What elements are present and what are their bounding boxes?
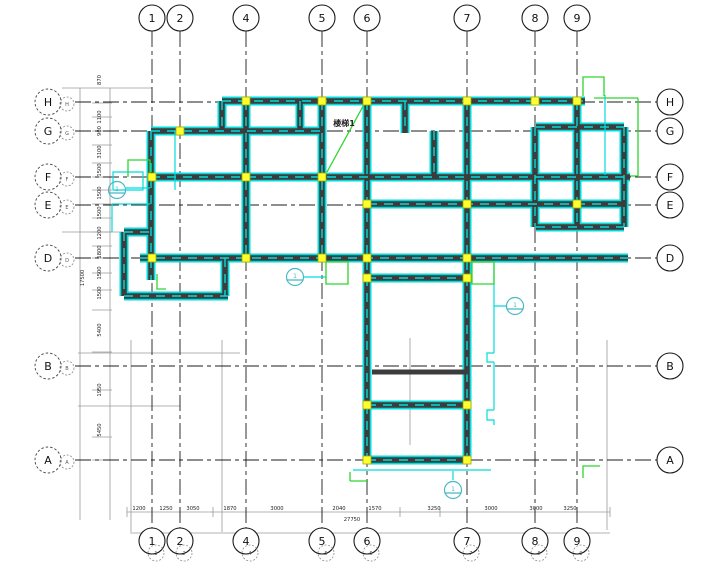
column-marker: [318, 173, 326, 181]
column-marker: [363, 274, 371, 282]
axis-bubble-label: G: [666, 125, 675, 138]
axis-bubble-label: G: [65, 131, 69, 137]
detail-marker-3: 1: [507, 298, 524, 315]
column-marker: [148, 173, 156, 181]
column-marker: [242, 173, 250, 181]
axis-bubble-label: H: [65, 102, 69, 108]
dim-bottom: 3250: [563, 506, 576, 512]
axis-bubble-label: G: [44, 125, 53, 138]
dim-left: 1800: [97, 245, 103, 258]
dim-bottom: 1570: [368, 506, 381, 512]
dim-left-total: 17500: [80, 270, 86, 287]
axis-bubble-label: B: [666, 360, 674, 373]
axis-bubble-label: 6: [364, 12, 371, 25]
dim-left: 1950: [97, 383, 103, 396]
axis-bubble-label: F: [45, 171, 51, 184]
axis-bubble-label: B: [44, 360, 52, 373]
detail-marker-number: 1: [115, 186, 119, 193]
axis-bubble-label: 1: [149, 12, 156, 25]
walls: [124, 101, 630, 460]
column-marker: [363, 401, 371, 409]
dim-left: 1500: [97, 163, 103, 176]
axis-bubble-label: 2: [177, 12, 184, 25]
floor-plan-svg: 1111 111222444555666777888999HHHGGGFFFEE…: [0, 0, 722, 576]
dim-bottom: 3000: [270, 506, 283, 512]
column-marker: [573, 97, 581, 105]
dim-bottom: 3000: [529, 506, 542, 512]
axis-bubble-label: 8: [537, 551, 540, 557]
axis-bubble-label: A: [65, 460, 69, 466]
axis-bubble-label: 6: [369, 551, 372, 557]
axis-bubble-label: E: [45, 199, 52, 212]
axis-bubble-label: 4: [248, 551, 251, 557]
axis-bubble-label: B: [65, 366, 69, 372]
dim-left: 1500: [97, 206, 103, 219]
column-marker: [318, 254, 326, 262]
axis-bubble-label: 7: [464, 12, 471, 25]
dim-left: 5400: [97, 323, 103, 336]
axis-bubble-label: E: [667, 199, 674, 212]
dim-left: 5450: [97, 423, 103, 436]
axis-bubble-label: F: [667, 171, 673, 184]
column-marker: [363, 97, 371, 105]
column-marker: [363, 200, 371, 208]
column-marker: [242, 254, 250, 262]
stair-label: 楼梯1: [333, 118, 355, 128]
column-marker: [463, 97, 471, 105]
dim-bottom: 1200: [132, 506, 145, 512]
dim-left: 900: [97, 126, 103, 136]
axis-bubble-label: 7: [469, 551, 472, 557]
axis-bubble-label: 9: [579, 551, 582, 557]
dim-left: 1500: [97, 286, 103, 299]
axis-bubble-label: D: [666, 252, 674, 265]
detail-marker-number: 1: [293, 273, 297, 280]
axis-bubble-label: 1: [154, 551, 157, 557]
dim-left: 1100: [97, 110, 103, 123]
column-marker: [463, 456, 471, 464]
axis-bubble-label: H: [44, 96, 52, 109]
detail-marker-number: 1: [513, 302, 517, 309]
column-marker: [242, 97, 250, 105]
axis-bubble-label: D: [65, 258, 69, 264]
dim-bottom: 1870: [223, 506, 236, 512]
axis-bubble-label: H: [666, 96, 674, 109]
dim-bottom: 2040: [332, 506, 345, 512]
column-marker: [463, 401, 471, 409]
axis-bubble-label: 9: [574, 12, 581, 25]
column-marker: [463, 200, 471, 208]
axis-bubble-label: A: [666, 454, 674, 467]
axis-bubble-label: E: [65, 205, 68, 211]
column-marker: [318, 97, 326, 105]
column-marker: [531, 97, 539, 105]
detail-marker-number: 1: [451, 486, 455, 493]
dim-left: 1500: [97, 266, 103, 279]
dim-left: 870: [97, 75, 103, 85]
axis-bubble-label: 5: [324, 551, 327, 557]
column-marker: [363, 254, 371, 262]
column-marker: [573, 200, 581, 208]
axis-bubble-label: 4: [243, 12, 250, 25]
dim-bottom: 3250: [427, 506, 440, 512]
detail-markers: 1111: [109, 182, 524, 499]
axis-bubble-label: D: [44, 252, 52, 265]
cad-floor-plan: 1111 111222444555666777888999HHHGGGFFFEE…: [0, 0, 722, 576]
dim-bottom: 1250: [159, 506, 172, 512]
column-marker: [148, 254, 156, 262]
column-marker: [176, 127, 184, 135]
dim-left: 1200: [97, 226, 103, 239]
axis-bubble-label: F: [66, 177, 69, 183]
dim-bottom: 3000: [484, 506, 497, 512]
axis-bubble-label: 8: [532, 12, 539, 25]
dim-bottom-total: 27750: [344, 517, 361, 523]
axis-bubble-label: 2: [182, 551, 185, 557]
axis-bubble-label: 5: [319, 12, 326, 25]
column-marker: [363, 456, 371, 464]
axis-bubble-label: A: [44, 454, 52, 467]
dim-left: 1500: [97, 186, 103, 199]
detail-marker-4: 1: [445, 482, 462, 499]
detail-marker-2: 1: [287, 269, 304, 286]
column-marker: [463, 274, 471, 282]
dim-bottom: 3050: [186, 506, 199, 512]
column-marker: [463, 254, 471, 262]
dim-left: 3100: [97, 145, 103, 158]
